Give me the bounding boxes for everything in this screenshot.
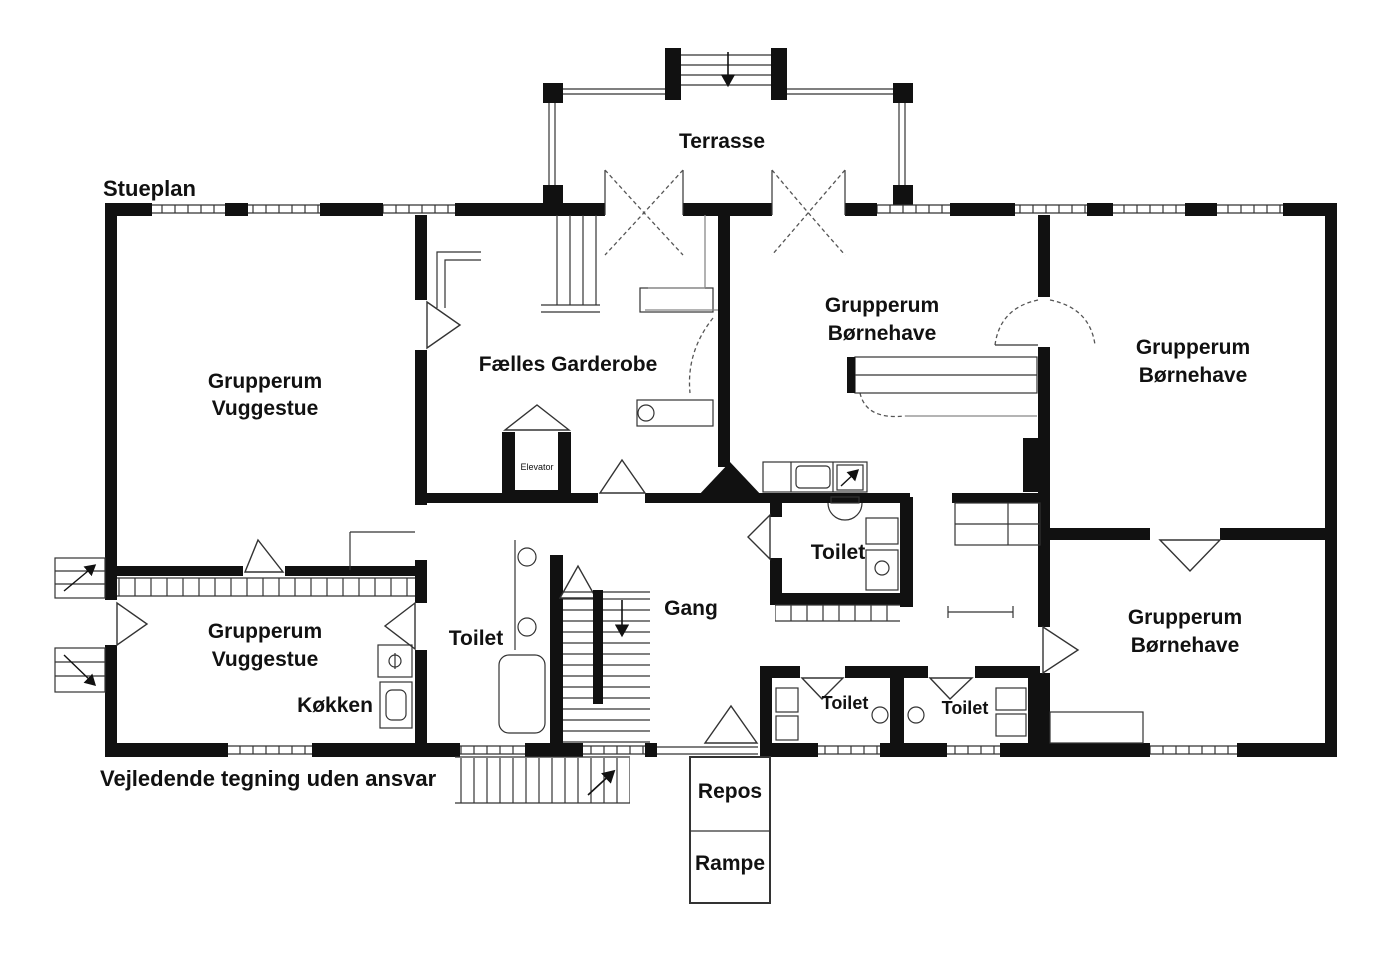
room-vuggestue-bottom-line1: Grupperum <box>208 620 322 643</box>
elevator-label: Elevator <box>520 462 553 472</box>
room-bornehave-mid-line2: Børnehave <box>828 322 937 345</box>
room-bornehave-right-bottom-line1: Grupperum <box>1128 606 1242 629</box>
room-vuggestue-top-line2: Vuggestue <box>212 397 319 420</box>
room-vuggestue-top-line1: Grupperum <box>208 370 322 393</box>
room-vuggestue-bottom-line2: Vuggestue <box>212 648 319 671</box>
room-kitchen-label: Køkken <box>297 694 373 717</box>
terrace-label: Terrasse <box>679 130 765 153</box>
room-hallway-label: Gang <box>664 597 718 620</box>
room-bornehave-right-top-line2: Børnehave <box>1139 364 1248 387</box>
plan-title: Stueplan <box>103 176 196 201</box>
floor-plan-svg: Stueplan Terrasse Grupperum Vuggestue Fæ… <box>0 0 1400 957</box>
room-toilet-mid-label: Toilet <box>811 541 865 564</box>
room-toilet-south-left-label: Toilet <box>822 693 869 713</box>
landing-label: Repos <box>698 780 762 803</box>
footer-note: Vejledende tegning uden ansvar <box>100 766 437 791</box>
floor-plan-page: Stueplan Terrasse Grupperum Vuggestue Fæ… <box>0 0 1400 957</box>
room-bornehave-right-top-line1: Grupperum <box>1136 336 1250 359</box>
room-garderobe-label: Fælles Garderobe <box>479 353 658 376</box>
room-toilet-west-label: Toilet <box>449 627 503 650</box>
room-bornehave-right-bottom-line2: Børnehave <box>1131 634 1240 657</box>
room-bornehave-mid-line1: Grupperum <box>825 294 939 317</box>
room-toilet-south-right-label: Toilet <box>942 698 989 718</box>
ramp-label: Rampe <box>695 852 765 875</box>
